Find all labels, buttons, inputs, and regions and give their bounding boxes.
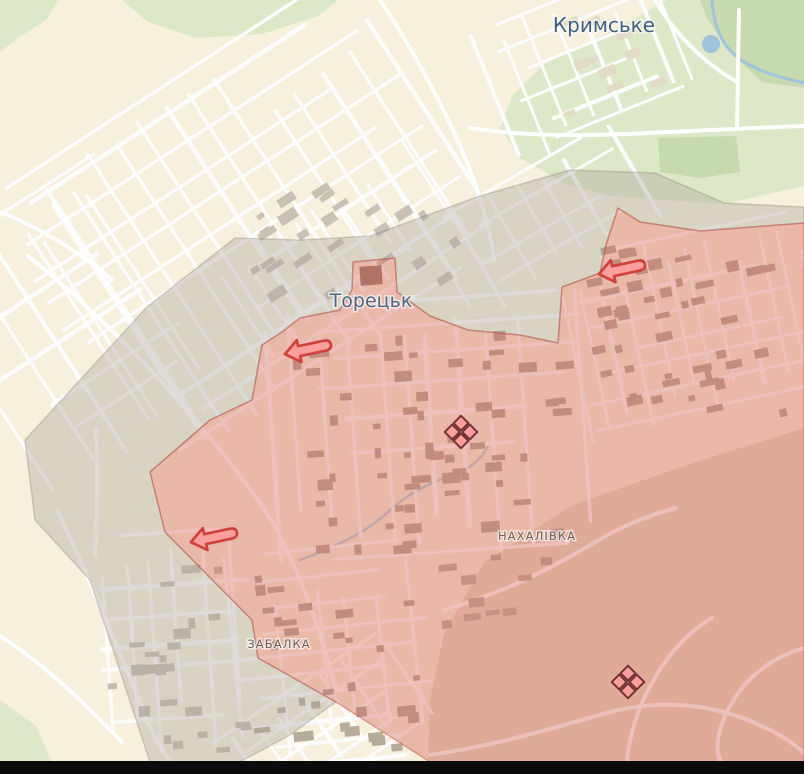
district-label-nakhalivka: НАХАЛІВКА — [498, 529, 576, 543]
district-label-zabalka: ЗАБАЛКА — [247, 637, 310, 651]
dense-forest-area — [658, 136, 740, 178]
town-label-krymske: Кримське — [553, 13, 655, 37]
building — [108, 683, 118, 690]
building — [340, 722, 351, 732]
road — [737, 10, 739, 128]
letterbox-bar — [0, 761, 804, 774]
building — [371, 735, 385, 746]
map-viewport[interactable]: Кримське Торецьк НАХАЛІВКА ЗАБАЛКА — [0, 0, 804, 774]
pond — [702, 35, 720, 53]
town-label-toretsk: Торецьк — [329, 290, 413, 312]
